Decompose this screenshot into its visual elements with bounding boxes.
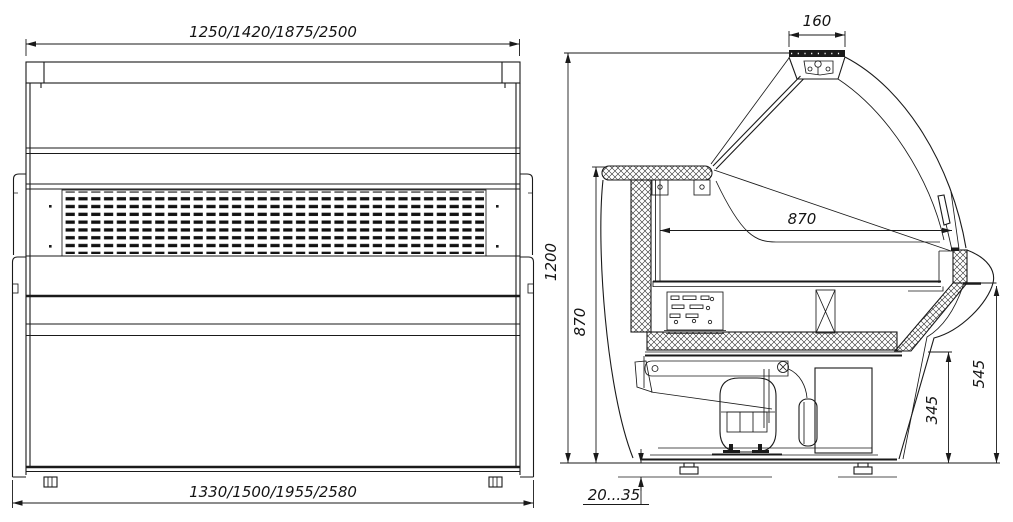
back-height-label: 870 — [571, 308, 589, 337]
screw-dot — [49, 245, 52, 248]
screw-dot — [496, 245, 499, 248]
compressor — [712, 369, 782, 455]
filler-section — [816, 290, 835, 333]
discharge-pipe — [764, 369, 769, 428]
drawing-sheet: 1250/1420/1875/2500 1330/1500/1955/2580 — [0, 0, 1013, 522]
front-view: 1250/1420/1875/2500 1330/1500/1955/2580 — [13, 23, 534, 508]
back-wall-insulation — [631, 180, 651, 332]
glass-support-strut — [713, 76, 804, 169]
glass-sill-height-label: 545 — [970, 360, 988, 389]
glass-frame-lines — [26, 148, 520, 154]
glass-lower-edge — [938, 195, 950, 225]
side-view: 160 1200 870 870 545 345 — [542, 12, 1000, 505]
dim-top-width: 1250/1420/1875/2500 — [26, 23, 520, 56]
top-width-label: 1250/1420/1875/2500 — [189, 23, 357, 41]
canopy-front — [26, 62, 520, 88]
dim-overall-height: 1200 — [542, 53, 568, 463]
rear-glass-line — [711, 58, 789, 164]
lamp-bracket — [804, 61, 833, 75]
body-outline — [26, 83, 520, 475]
bottom-insulation-slab — [647, 332, 897, 350]
front-wall-insulation — [953, 250, 967, 283]
front-panel-edges — [26, 296, 520, 467]
inclined-front-insulation — [895, 283, 967, 351]
electrical-box — [664, 292, 726, 334]
dim-bottom-width: 1330/1500/1955/2580 — [13, 480, 534, 508]
lamp-tube — [815, 61, 821, 67]
grille-slots — [64, 192, 484, 255]
bumper-clip — [13, 284, 19, 293]
cable — [789, 369, 808, 398]
canopy-width-label: 160 — [803, 12, 832, 30]
machinery-compartment — [635, 352, 902, 460]
screw-dot — [496, 205, 499, 208]
front-air-duct — [939, 251, 953, 283]
ventilation-grille — [49, 190, 499, 256]
canopy-side — [789, 50, 845, 79]
dim-front-panel-height: 345 — [923, 352, 952, 463]
overall-height-label: 1200 — [542, 243, 560, 281]
dim-display-depth: 870 — [660, 210, 952, 231]
leg-adjust-label: 20...35 — [588, 486, 640, 504]
condenser-unit — [815, 368, 872, 453]
front-panel-height-label: 345 — [923, 396, 941, 425]
rear-panel — [601, 180, 633, 458]
adjustable-feet-side — [680, 463, 872, 474]
bottom-width-label: 1330/1500/1955/2580 — [189, 483, 357, 501]
mounting-bracket — [635, 361, 807, 409]
bumper-clip — [528, 284, 534, 293]
curved-glass-front — [711, 57, 966, 250]
worktop-slab — [602, 166, 712, 180]
display-depth-label: 870 — [788, 210, 817, 228]
technical-drawing: 1250/1420/1875/2500 1330/1500/1955/2580 — [0, 0, 1013, 522]
dim-canopy-width: 160 — [789, 12, 845, 47]
worktop-brackets — [652, 180, 710, 195]
glass-stop — [951, 248, 959, 252]
screw-dot — [49, 205, 52, 208]
receiver-drier — [799, 399, 817, 446]
